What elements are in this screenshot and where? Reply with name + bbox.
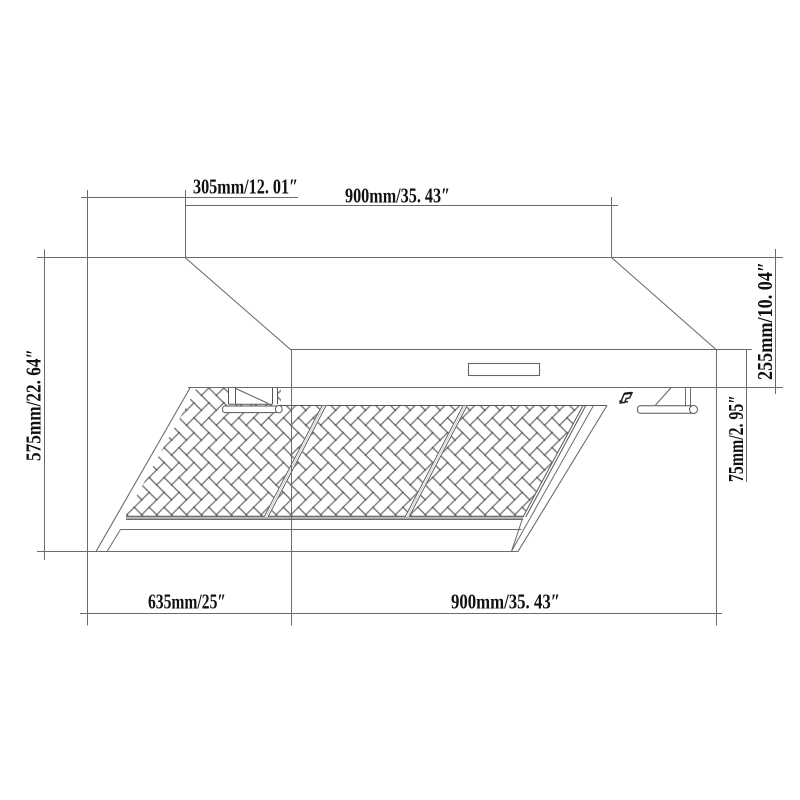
svg-text:255mm/10. 04″: 255mm/10. 04″ <box>753 262 777 380</box>
svg-text:305mm/12. 01″: 305mm/12. 01″ <box>193 175 298 199</box>
svg-text:900mm/35. 43″: 900mm/35. 43″ <box>451 590 560 614</box>
svg-text:900mm/35. 43″: 900mm/35. 43″ <box>345 184 450 208</box>
svg-text:75mm/2. 95″: 75mm/2. 95″ <box>724 395 748 482</box>
svg-text:575mm/22. 64″: 575mm/22. 64″ <box>22 349 46 461</box>
svg-text:635mm/25″: 635mm/25″ <box>148 590 226 614</box>
